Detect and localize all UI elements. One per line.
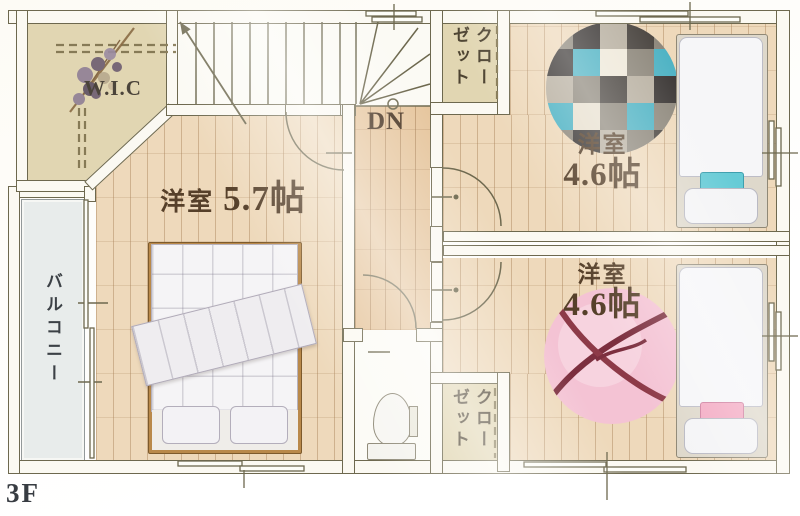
window [372, 17, 422, 22]
window [776, 312, 781, 370]
closet-top-label: クローゼット [447, 26, 493, 92]
room-type: 洋室 [535, 132, 670, 157]
room-bottom-right-label: 洋室 4.6帖 [535, 262, 670, 324]
room-type: 洋室 [160, 189, 214, 217]
floor-plan: W.I.C DN 洋室 5.7帖 洋室 4.6帖 洋室 4.6帖 クローゼット … [0, 0, 800, 516]
stairs-direction-arrow [180, 22, 246, 124]
window [178, 461, 242, 466]
room-size: 4.6帖 [535, 157, 670, 193]
arrowhead [180, 22, 191, 35]
door-arc-toilet [363, 275, 416, 328]
balcony-sliding-door [84, 200, 88, 328]
door-handle-dot [454, 195, 459, 293]
balcony-label: バルコニー [40, 272, 65, 402]
window [604, 467, 686, 472]
stair-treads [196, 22, 356, 104]
window [596, 11, 688, 16]
window [769, 121, 774, 179]
balcony-sliding-door [90, 328, 94, 458]
wic-label: W.I.C [84, 76, 142, 101]
down-label: DN [367, 108, 405, 136]
floor-number-label: 3F [6, 478, 40, 509]
window [524, 462, 606, 467]
window [769, 303, 774, 361]
door-arc-room-bottom-right [443, 262, 501, 320]
room-type: 洋室 [535, 262, 670, 287]
closet-bottom-label: クローゼット [447, 388, 493, 454]
window-tick [244, 2, 798, 500]
window [366, 11, 416, 16]
room-top-right-label: 洋室 4.6帖 [535, 132, 670, 194]
window [240, 466, 304, 471]
room-size: 5.7帖 [223, 180, 306, 219]
stair-winder [360, 22, 430, 104]
main-room-label: 洋室 5.7帖 [128, 180, 338, 219]
wic-shelf-dashed [79, 108, 85, 170]
door-arc-main-room [286, 112, 344, 170]
room-size: 4.6帖 [535, 287, 670, 323]
window [776, 128, 781, 186]
